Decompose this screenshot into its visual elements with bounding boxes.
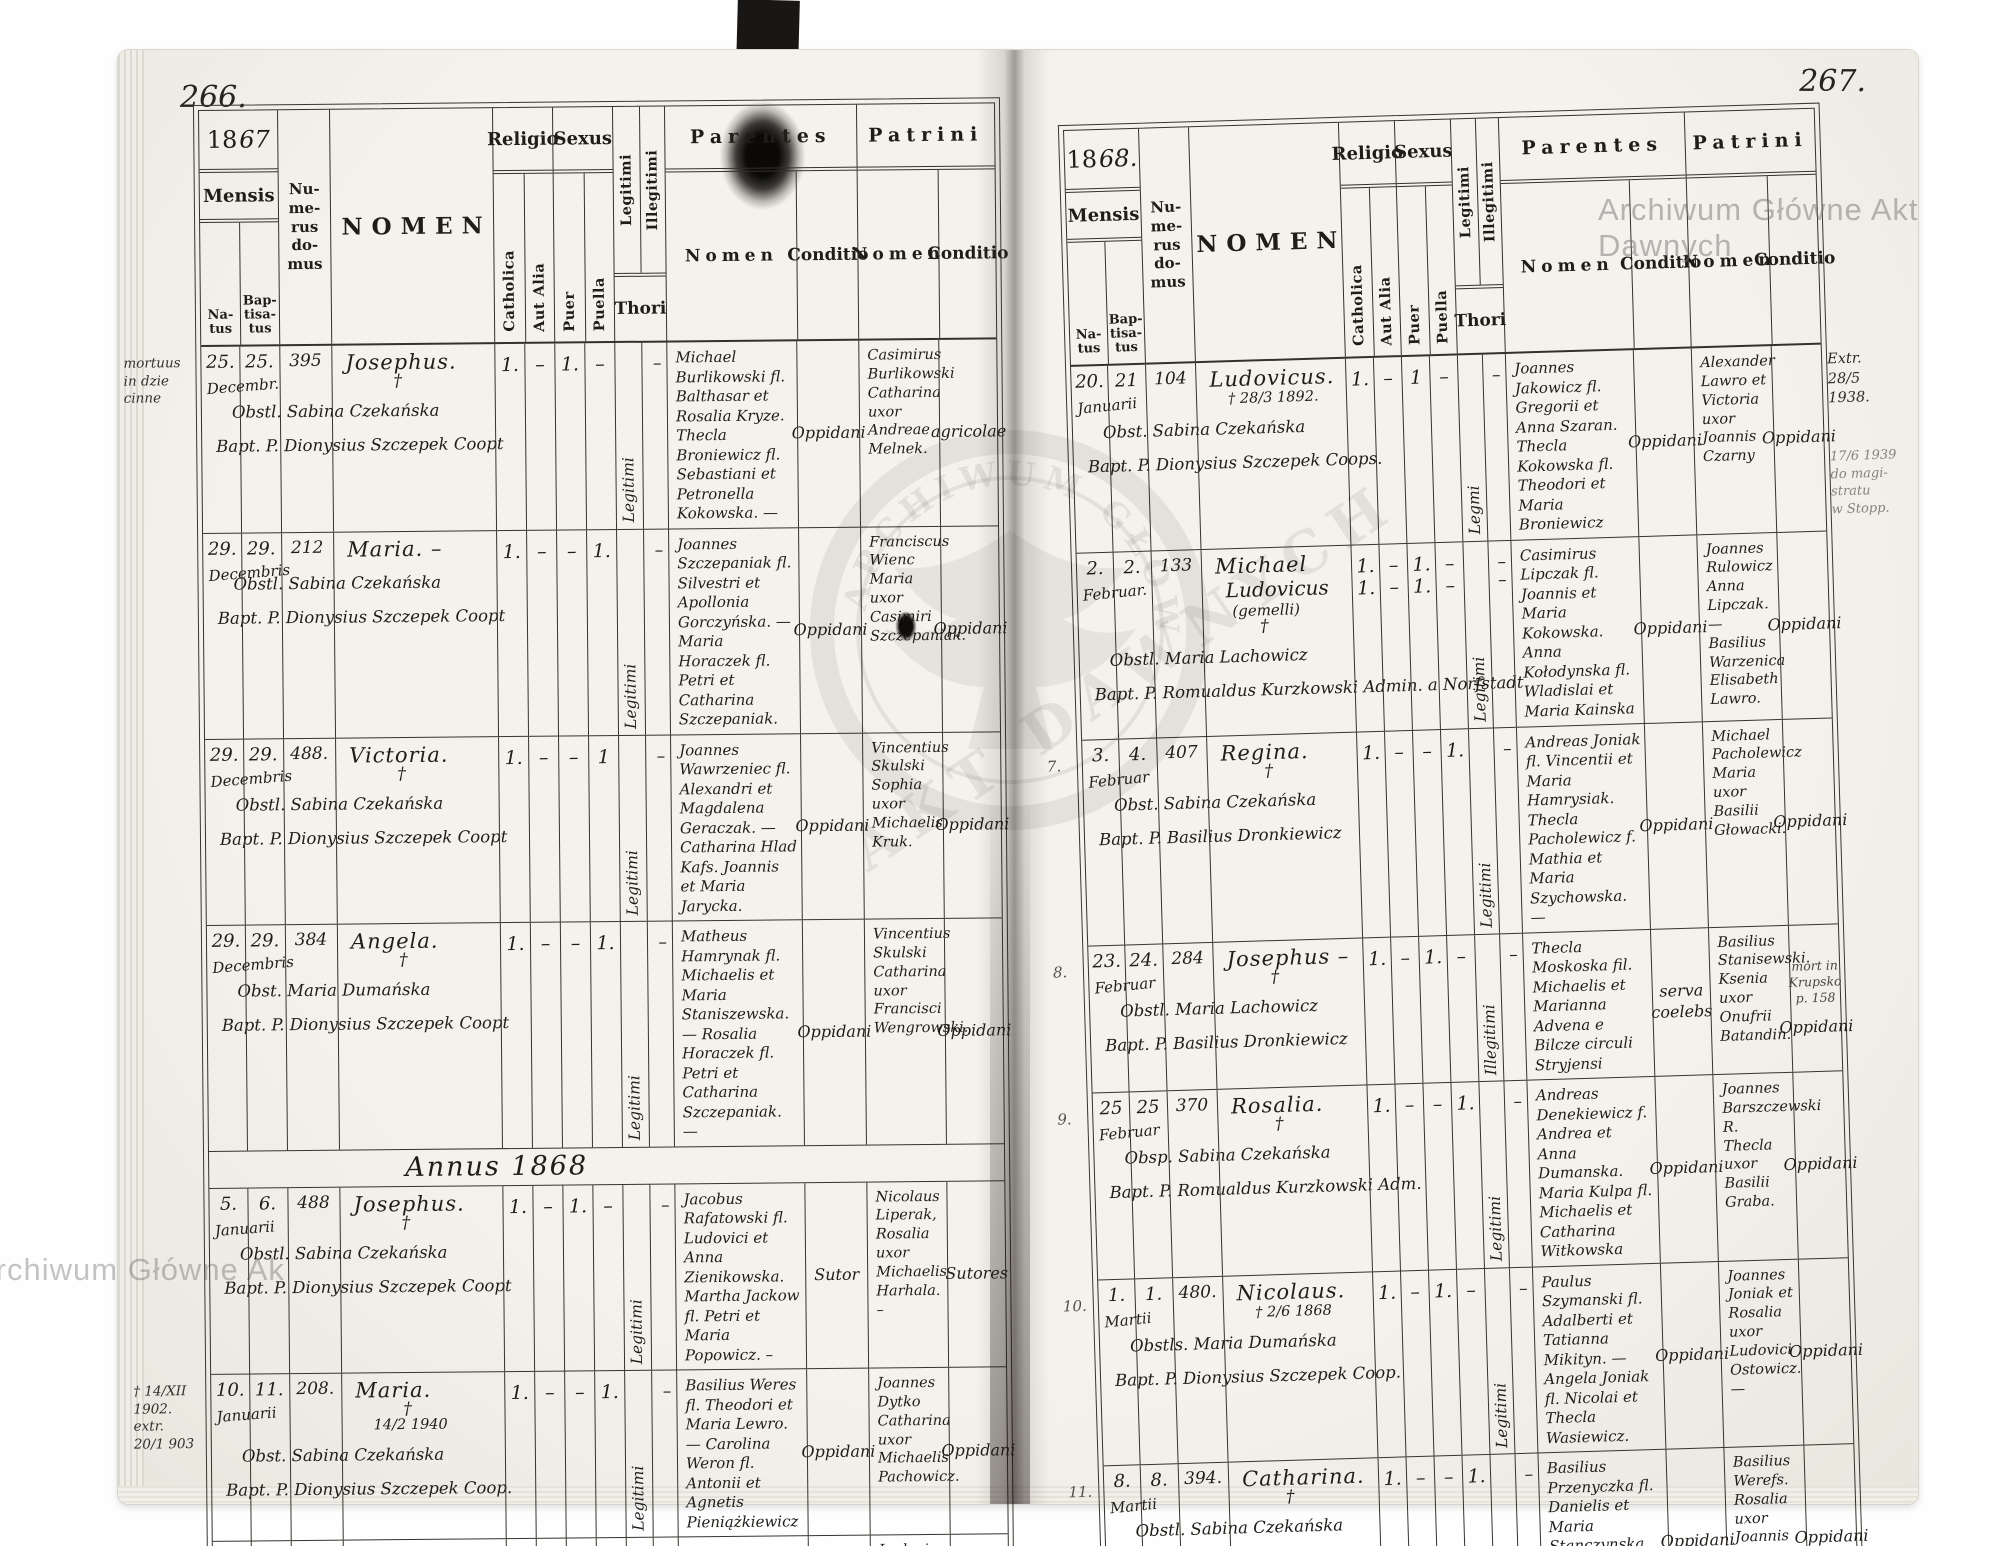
baptizer-line: Bapt. P. Dionysius Szczepek Coopt xyxy=(216,434,495,456)
thori-cell: Legitimi – xyxy=(620,921,674,1146)
patrini-nomen: Joannes Dytko Catharina uxor Michaelis P… xyxy=(868,1368,950,1535)
catholica-mark: 1. xyxy=(506,1539,538,1546)
thori-cell: Illegitimi – xyxy=(1474,933,1526,1081)
baptizer-line: Bapt. P. Romualdus Kurzkowski Admin. a N… xyxy=(1094,677,1354,704)
register-entry: 23. 24. 284 Josephus – † Februar Obstl. … xyxy=(1088,923,1842,1093)
aut-alia-mark: – xyxy=(524,344,556,530)
register-entry: 20. 21 104 Ludovicus. † 28/3 1892. Janua… xyxy=(1071,345,1826,553)
baptisatus-label: Bap- tisa- tus xyxy=(239,222,279,344)
entry-left-block: 25. 25. 395 Josephus. † Decembr. Obstl. … xyxy=(201,344,496,532)
sexus-group: Sexus PuerPuella xyxy=(1394,120,1457,356)
catholica-mark: 1. xyxy=(502,1185,534,1371)
parentes-nomen: Basilius Przenyczka fl. Danielis et Mari… xyxy=(1537,1450,1670,1546)
thori-cell: Legmi – xyxy=(1457,354,1510,541)
catholica-label: Catholica xyxy=(501,250,519,332)
register-entry: 29. 29. 488. Victoria. † Decembris Obstl… xyxy=(205,731,1002,925)
parentes-conditio: Oppidani xyxy=(796,341,860,527)
patrini-group: Patrini NomenConditio xyxy=(1684,109,1821,347)
parentes-nomen: Joannes Jakowicz fl. Gregorii et Anna Sz… xyxy=(1505,350,1638,539)
catholica-mark: 1. xyxy=(1362,937,1394,1084)
mensis-label: Mensis xyxy=(1066,191,1141,243)
aut-alia-mark: – xyxy=(534,1372,566,1538)
midwife-line: Obst. Maria Dumańska xyxy=(237,979,500,1001)
baptism-name: Josephus. xyxy=(353,1191,502,1216)
midwife-line: Obst. Sabina Czekańska xyxy=(1103,416,1347,442)
parentes-conditio: Oppidani xyxy=(1654,1075,1717,1262)
thori-group: LegitimiIllegitimi Thori xyxy=(612,107,666,341)
name-block: Maria. – xyxy=(333,536,496,562)
parentes-nomen: Matheus Hamrynak fl. Michaelis et Maria … xyxy=(672,920,804,1146)
puella-label: Puella xyxy=(591,277,609,331)
puer-mark: 1. xyxy=(554,343,586,529)
parentes-conditio-label: Conditio xyxy=(796,171,860,340)
thori-value: Legitimi xyxy=(618,349,638,523)
puer-mark: 1. xyxy=(1418,935,1450,1082)
midwife-line: Obsp. Sabina Czekańska xyxy=(1124,1142,1368,1168)
page-right: 267. 1868. Mensis Na- tus Bap- tisa- tus… xyxy=(1005,50,1918,1504)
midwife-line: Obstl. Maria Lachowicz xyxy=(1120,994,1364,1020)
baptizer-line: Bapt. P. Dionysius Szczepek Coop. xyxy=(1115,1363,1375,1390)
patrini-margin-note: mort in Krupsko p. 158 xyxy=(1788,957,1842,1007)
parentes-nomen-label: Nomen xyxy=(1501,180,1634,352)
baptizer-line: Bapt. P. Basilius Dronkiewicz xyxy=(1099,822,1359,849)
patrini-nomen: Basilius Stanisewski. Ksenia uxor Onufri… xyxy=(1708,925,1792,1074)
parentes-nomen-label: Nomen xyxy=(666,171,798,340)
thori-value: Legitimi xyxy=(1494,1460,1517,1546)
name-block: Ludovicus. † 28/3 1892. xyxy=(1195,364,1346,408)
thori-value: Legitimi xyxy=(626,1190,646,1364)
gutter-number: 11. xyxy=(1068,1483,1099,1502)
patrini-nomen: Ludovicus Kozłowski Agnes Kozłowska. Coe… xyxy=(870,1535,952,1546)
thori-value: Legmi xyxy=(1461,361,1484,535)
parentes-nomen: Andreas Joniak fl. Vincentii et Maria Ha… xyxy=(1516,724,1650,933)
puella-mark: 1 xyxy=(588,735,620,921)
entry-left-block: 1. 1. 480. Nicolaus. † 2/6 1868 Martii O… xyxy=(1098,1272,1377,1466)
baptizer-line: Bapt. P. Dionysius Szczepek Coop. xyxy=(226,1478,505,1500)
puella-mark: – xyxy=(592,1184,624,1370)
catholica-mark: 1. xyxy=(494,344,526,530)
name-block: Josephus. † xyxy=(339,1191,502,1232)
puer-mark: – xyxy=(556,530,588,735)
religio-group: Religio CatholicaAut Alia xyxy=(492,108,554,343)
parentes-conditio: Oppidani xyxy=(1633,348,1696,535)
baptisatus-label: Bap- tisa- tus xyxy=(1104,241,1145,364)
thori-cell: Legitimi – xyxy=(626,1537,680,1546)
thori-cell: Legitimi – xyxy=(618,735,672,921)
header-dates: 1868. Mensis Na- tus Bap- tisa- tus xyxy=(1064,129,1145,365)
death-date-note: 14/2 1940 xyxy=(356,1416,505,1433)
patrini-nomen: Franciscus Wienc Maria uxor Casimiri Szc… xyxy=(860,526,942,732)
aut-alia-mark: – xyxy=(526,530,558,735)
midwife-line: Obstls. Maria Dumańska xyxy=(1130,1329,1374,1355)
parentes-conditio: Oppidani xyxy=(808,1536,872,1546)
puella-mark: – xyxy=(584,343,616,529)
entry-left-block: 29. 29. 488. Victoria. † Decembris Obstl… xyxy=(205,737,500,925)
entry-left-block: 23. 24. 284 Josephus – † Februar Obstl. … xyxy=(1088,938,1366,1093)
thori-cell: Legitimi – xyxy=(1484,1267,1537,1454)
margin-note-right-pencil: 17/6 1939 do magi- stratu w Stopp. xyxy=(1830,446,1922,519)
entry-left-block: 29. 29. 212 Maria. – Decembris Obstl. Sa… xyxy=(203,531,498,739)
baptizer-line: Bapt. P. Dionysius Szczepek Coopt xyxy=(220,827,499,849)
thori-value: Legitimi xyxy=(620,535,640,728)
thori-group: LegitimiIllegitimi Thori xyxy=(1450,118,1505,353)
name-block: Catharina. † xyxy=(1228,1463,1379,1507)
name-block: Victoria. † xyxy=(335,742,498,783)
page-number-right: 267. xyxy=(1799,64,1866,99)
parentes-conditio: Oppidani xyxy=(806,1369,870,1536)
puer-mark: 1. xyxy=(566,1538,598,1546)
name-block: Maria. † 14/2 1940 xyxy=(341,1377,505,1434)
puer-mark: – xyxy=(564,1371,596,1537)
baptism-name: Maria. – xyxy=(347,536,496,561)
patrini-conditio-label: Conditio xyxy=(1767,175,1822,344)
thori-value: Legitimi xyxy=(1488,1274,1511,1448)
catholica-label: Catholica xyxy=(1348,264,1367,346)
thori-value: Legitimi xyxy=(624,928,644,1141)
midwife-line: Obstl. Sabina Czekańska xyxy=(236,793,499,815)
legitimi-label: Legitimi xyxy=(618,154,636,226)
patrini-conditio: Oppidani xyxy=(1776,531,1831,718)
thori-label: Thori xyxy=(1456,284,1505,353)
thori-cell: Legitimi – xyxy=(622,1184,676,1370)
aut-alia-mark: – xyxy=(536,1539,568,1546)
table-header-right: 1868. Mensis Na- tus Bap- tisa- tus Nu- … xyxy=(1064,109,1821,367)
scanned-register-image: 266. 1867 Mensis Na- tus Bap- tisa- tus … xyxy=(0,0,2000,1546)
natus-label: Na- tus xyxy=(200,223,240,345)
cross-mark: † xyxy=(1242,1488,1338,1506)
parentes-conditio: Oppidani xyxy=(802,920,866,1145)
baptism-name: Josephus – xyxy=(1226,943,1363,971)
death-date-note: † 2/6 1868 xyxy=(1237,1301,1373,1321)
register-entry: 1. 1. 480. Nicolaus. † 2/6 1868 Martii O… xyxy=(1098,1257,1853,1466)
register-entry: 29. 29. 212 Maria. – Decembris Obstl. Sa… xyxy=(203,525,1000,739)
midwife-line: Obstl. Sabina Czekańska xyxy=(1135,1515,1379,1541)
name-qualifier: (gemelli) xyxy=(1216,598,1352,620)
parentes-nomen: Michael Burlikowski fl. Balthasar et Ros… xyxy=(666,341,798,528)
entry-left-block: 11. 12. 224 Joannes. † Januarii Obstl. S… xyxy=(213,1539,508,1546)
natus-day: 29. xyxy=(203,538,241,562)
year-label: 1868. xyxy=(1064,129,1140,193)
numerus-domus-label: Nu- me- rus do- mus xyxy=(277,110,331,344)
baptism-name: Catharina. xyxy=(1242,1463,1379,1491)
patrini-conditio: Oppidani xyxy=(1771,345,1826,532)
thori-value: Legitimi xyxy=(1472,734,1496,927)
parentes-conditio: Oppidani xyxy=(798,527,862,733)
parentes-conditio: serva coelebs xyxy=(1650,928,1712,1076)
register-book: 266. 1867 Mensis Na- tus Bap- tisa- tus … xyxy=(118,50,1918,1504)
patrini-nomen: Vincentius Skulski Sophia uxor Michaelis… xyxy=(862,732,944,918)
parentes-nomen: Basilius Weres fl. Theodori et Maria Lew… xyxy=(676,1369,808,1536)
midwife-line: Obstl. Sabina Czekańska xyxy=(232,400,495,422)
parentes-group: Parentes NomenConditio xyxy=(1498,113,1691,352)
midwife-line: Obst. Sabina Czekańska xyxy=(242,1444,505,1466)
puella-mark: 1. xyxy=(590,922,622,1147)
nomen-label: NOMEN xyxy=(329,108,494,344)
gutter-number: 7. xyxy=(1047,756,1078,775)
margin-note: † 14/XII 1902. extr. 20/1 903 xyxy=(133,1383,206,1454)
midwife-line: Obstl. Sabina Czekańska xyxy=(240,1242,503,1264)
name-block: Nicolaus. † 2/6 1868 xyxy=(1222,1277,1373,1321)
register-entry: 3. 4. 407 Regina. † Februar Obst. Sabina… xyxy=(1082,717,1838,945)
baptizer-line: Bapt. P. Basilius Dronkiewicz xyxy=(1105,1028,1365,1055)
cross-mark: † xyxy=(351,953,455,969)
cross-mark: † xyxy=(349,766,453,782)
parentes-nomen: Casimirus Lipczak fl. Joannis et Maria K… xyxy=(1510,537,1643,727)
thori-label: Thori xyxy=(615,273,667,341)
aut-alia-label: Aut Alia xyxy=(531,262,549,331)
header-dates: 1867 Mensis Na- tus Bap- tisa- tus xyxy=(199,110,279,345)
illegitimi-label: Illegitimi xyxy=(644,149,662,230)
aut-alia-mark: – xyxy=(528,736,560,922)
mensis-label: Mensis xyxy=(200,172,278,223)
baptizer-line: Bapt. P. Dionysius Szczepek Coopt xyxy=(222,1013,501,1035)
thori-value: Legitimi xyxy=(628,1377,647,1531)
parentes-nomen: Thecla Moskoska fil. Michaelis et Marian… xyxy=(1522,929,1654,1079)
thori-cell: Legitimi – – xyxy=(1462,540,1515,727)
aut-alia-label: Aut Alia xyxy=(1377,276,1396,346)
register-entry: 5. 6. 488 Josephus. † Januarii Obstl. Sa… xyxy=(209,1180,1006,1374)
thori-cell: Legitimi – xyxy=(624,1370,678,1536)
entry-left-block: 10. 11. 208. Maria. † 14/2 1940 Januarii… xyxy=(211,1372,506,1541)
legitimi-label: Legitimi xyxy=(1455,166,1474,239)
baptism-name: Rosalia. xyxy=(1231,1090,1368,1118)
thori-cell: Legitimi – xyxy=(1468,727,1522,933)
cross-mark: † xyxy=(1221,762,1317,780)
puella-label: Puella xyxy=(1433,289,1452,344)
puer-mark: 1. xyxy=(562,1185,594,1371)
cross-mark: † xyxy=(1231,1116,1327,1134)
entry-left-block: 8. 8. 394. Catharina. † Martii Obstl. Sa… xyxy=(1104,1458,1383,1546)
gutter-number: 10. xyxy=(1063,1296,1094,1315)
entries-left: 25. 25. 395 Josephus. † Decembr. Obstl. … xyxy=(201,339,1012,1546)
parentes-nomen: Andreas Denekiewicz f. Andrea et Anna Du… xyxy=(1526,1077,1659,1266)
parentes-nomen: Paulus Szymanski fl. Adalberti et Tatian… xyxy=(1532,1263,1665,1452)
baptism-name: Regina. xyxy=(1220,737,1357,765)
natus-label: Na- tus xyxy=(1067,242,1108,365)
sexus-group: Sexus PuerPuella xyxy=(552,107,614,342)
patrini-conditio: Oppidani xyxy=(950,1534,1010,1546)
patrini-conditio: Oppidani xyxy=(1803,1444,1858,1546)
gutter-number: 8. xyxy=(1053,962,1084,981)
cross-mark: † xyxy=(346,374,450,390)
baptizer-line: Bapt. P. Dionysius Szczepek Coopt xyxy=(224,1276,503,1298)
parentes-conditio: Oppidani xyxy=(1638,535,1701,723)
baptism-name: Ludovicus. xyxy=(1209,364,1346,392)
baptizer-line: Bapt. P. Dionysius Szczepek Coopt xyxy=(218,606,497,628)
catholica-mark: 1. xyxy=(498,736,530,922)
register-entry: 25. 25. 395 Josephus. † Decembr. Obstl. … xyxy=(201,339,998,532)
register-entry: 2. 2. 133 Michael Ludovicus (gemelli) † … xyxy=(1077,530,1832,739)
puella-mark: – xyxy=(1446,935,1478,1082)
thori-cell: Legitimi – xyxy=(616,529,670,734)
register-entry: 25 25 370 Rosalia. † Februar Obsp. Sabin… xyxy=(1093,1070,1848,1279)
patrini-nomen: Casimirus Burlikowski Catharina uxor And… xyxy=(858,340,940,526)
patrini-conditio: Oppidani xyxy=(1792,1071,1847,1258)
thori-value: Legitimi xyxy=(1467,547,1490,721)
patrini-nomen: Nicolaus Liperak, Rosalia uxor Michaelis… xyxy=(866,1181,948,1367)
baptism-name: Victoria. xyxy=(349,742,498,767)
register-table-right: 1868. Mensis Na- tus Bap- tisa- tus Nu- … xyxy=(1063,108,1867,1546)
parentes-conditio: Oppidani xyxy=(1660,1262,1723,1449)
aut-alia-mark: – xyxy=(1390,936,1422,1083)
thori-value: Legitimi xyxy=(622,741,642,915)
parentes-nomen: Petrus Lachowicz fl. Sebastiani et Maria… xyxy=(678,1536,810,1546)
cross-mark: † xyxy=(355,1402,459,1418)
patrini-nomen: Vincentius Skulski Catharina uxor Franci… xyxy=(864,919,946,1144)
catholica-mark: 1. xyxy=(500,923,532,1148)
register-table-left: 1867 Mensis Na- tus Bap- tisa- tus Nu- m… xyxy=(198,102,1013,1546)
year-label: 1867 xyxy=(199,110,278,173)
name-block: Josephus – † xyxy=(1212,943,1363,987)
baptism-name: Angela. xyxy=(351,928,500,953)
thori-value: Illegitimi xyxy=(1478,940,1500,1075)
death-date-note: † 28/3 1892. xyxy=(1210,388,1346,408)
margin-note: mortuus in dzie cinne xyxy=(123,355,196,408)
baptism-name: Josephus. xyxy=(345,349,494,374)
thori-cell: Legitimi – xyxy=(614,343,668,529)
parentes-conditio: Oppidani xyxy=(1665,1448,1728,1546)
patrini-conditio: Oppidani xyxy=(1782,718,1838,924)
catholica-mark: 1. xyxy=(504,1372,536,1538)
parentes-conditio: Oppidani xyxy=(1644,722,1708,929)
puella-mark: 1. xyxy=(586,530,618,735)
gutter-number: 9. xyxy=(1057,1110,1088,1129)
catholica-mark: 1. xyxy=(496,530,528,735)
parentes-group: Parentes NomenConditio xyxy=(664,105,858,341)
entry-left-block: 29. 29. 384 Angela. † Decembris Obst. Ma… xyxy=(207,923,502,1150)
baptizer-line: Bapt. P. Romualdus Kurzkowski Adm. xyxy=(1109,1176,1369,1203)
register-entry: 29. 29. 384 Angela. † Decembris Obst. Ma… xyxy=(207,917,1004,1150)
entry-left-block: 20. 21 104 Ludovicus. † 28/3 1892. Janua… xyxy=(1071,359,1350,553)
house-number: 212 xyxy=(281,537,333,561)
entries-right: 20. 21 104 Ludovicus. † 28/3 1892. Janua… xyxy=(1071,345,1865,1546)
cross-mark: † xyxy=(1227,968,1323,986)
nomen-label: NOMEN xyxy=(1188,123,1345,361)
baptism-name: Maria. xyxy=(355,1377,504,1402)
name-block: Regina. † xyxy=(1206,737,1357,781)
entry-left-block: 3. 4. 407 Regina. † Februar Obst. Sabina… xyxy=(1082,732,1362,945)
parentes-nomen: Jacobus Rafatowski fl. Ludovici et Anna … xyxy=(674,1183,806,1370)
cross-mark: † xyxy=(354,1215,458,1231)
puer-label: Puer xyxy=(561,291,578,331)
puer-mark: – xyxy=(558,736,590,922)
patrini-conditio: Oppidani xyxy=(1798,1258,1853,1445)
midwife-line: Obstl. Maria Lachowicz xyxy=(1109,643,1353,669)
book-gutter-shadow xyxy=(976,50,1050,1504)
parentes-conditio: Sutor xyxy=(804,1182,868,1368)
entry-left-block: 2. 2. 133 Michael Ludovicus (gemelli) † … xyxy=(1077,545,1356,739)
thori-cell: Legitimi – xyxy=(1489,1454,1542,1546)
parentes-conditio: Oppidani xyxy=(800,733,864,919)
entry-left-block: 25 25 370 Rosalia. † Februar Obsp. Sabin… xyxy=(1093,1085,1372,1279)
thori-value: Legitimi xyxy=(1483,1087,1506,1261)
illegitimi-label: Illegitimi xyxy=(1479,161,1498,242)
thori-cell: Legitimi – xyxy=(1478,1081,1531,1268)
religio-group: Religio CatholicaAut Alia xyxy=(1338,121,1401,357)
name-block: Rosalia. † xyxy=(1217,1090,1368,1134)
entry-left-block: 5. 6. 488 Josephus. † Januarii Obstl. Sa… xyxy=(209,1186,504,1374)
register-entry: 10. 11. 208. Maria. † 14/2 1940 Januarii… xyxy=(211,1366,1008,1541)
puer-label: Puer xyxy=(1406,304,1424,345)
parentes-nomen: Joannes Wawrzeniec fl. Alexandri et Magd… xyxy=(670,734,802,921)
puella-mark: – xyxy=(596,1538,628,1546)
name-block: Josephus. † xyxy=(331,349,494,390)
puer-mark: – xyxy=(560,922,592,1147)
margin-note-right: Extr. 28/5 1938. xyxy=(1827,348,1919,409)
numerus-domus-label: Nu- me- rus do- mus xyxy=(1138,127,1195,362)
aut-alia-mark: – xyxy=(532,1185,564,1371)
cross-mark: † xyxy=(1217,617,1313,635)
aut-alia-mark: – xyxy=(530,923,562,1148)
parentes-nomen: Joannes Szczepaniak fl. Silvestri et Apo… xyxy=(668,528,800,734)
table-header-left: 1867 Mensis Na- tus Bap- tisa- tus Nu- m… xyxy=(199,103,996,347)
baptizer-line: Bapt. P. Dionysius Szczepek Coops. xyxy=(1088,450,1348,477)
midwife-line: Obst. Sabina Czekańska xyxy=(1114,788,1358,814)
baptisatus-day: 29. xyxy=(241,538,281,562)
patrini-conditio: mort in Krupsko p. 158 Oppidani xyxy=(1788,924,1842,1072)
page-left: 266. 1867 Mensis Na- tus Bap- tisa- tus … xyxy=(118,50,1005,1504)
name-block: Michael Ludovicus (gemelli) † xyxy=(1201,550,1353,636)
puella-mark: 1. xyxy=(594,1371,626,1537)
name-block: Angela. † xyxy=(337,928,500,969)
